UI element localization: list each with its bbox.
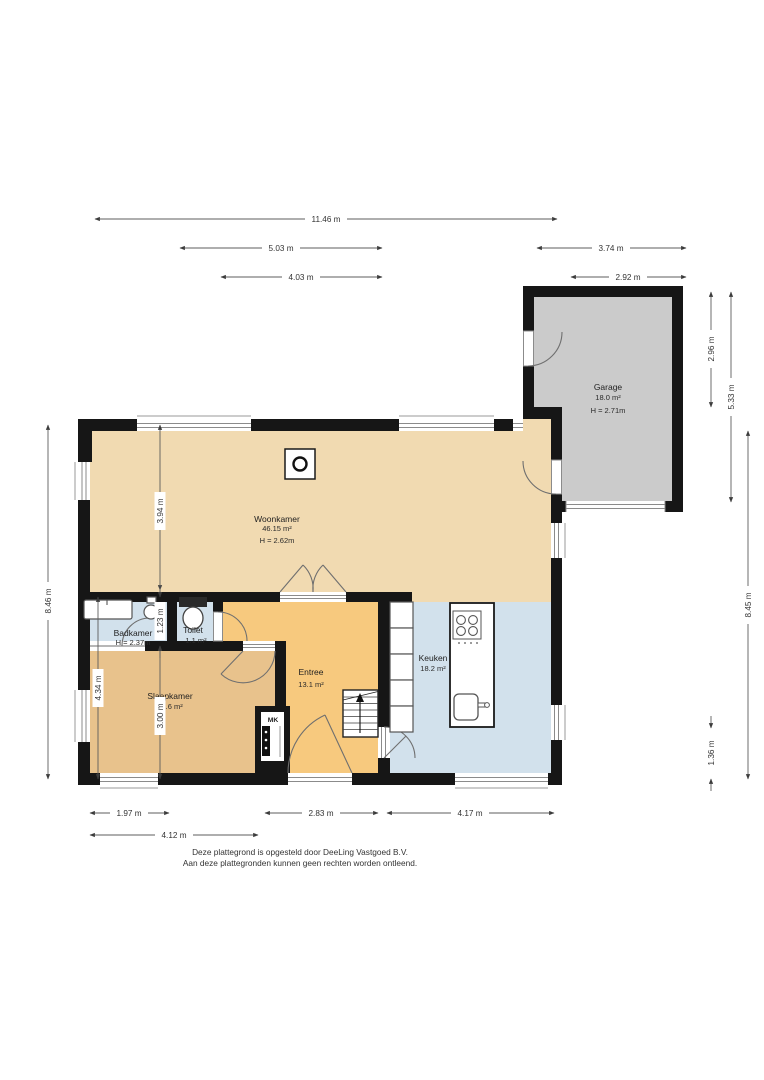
room-woonkamer-notch <box>523 419 551 431</box>
dim-right-garage: 5.33 m <box>726 292 737 502</box>
window-bottom-slaapkamer <box>100 773 158 788</box>
window-right-woonkamer <box>551 523 565 558</box>
dim-top-right-inner: 2.92 m <box>571 272 686 283</box>
dim-bottom-entree: 2.83 m <box>265 808 378 819</box>
window-right-keuken <box>551 705 565 740</box>
wall-entree-keuken-lower <box>378 758 390 773</box>
svg-text:8.45 m: 8.45 m <box>744 592 753 617</box>
svg-text:3.00 m: 3.00 m <box>156 703 165 728</box>
window-top-1 <box>137 416 251 431</box>
dim-bottom-slaapkamer: 1.97 m <box>90 808 169 819</box>
label-woonkamer: Woonkamer <box>254 514 300 524</box>
kitchen-cabinets <box>390 602 413 732</box>
wall-woonkamer-south <box>90 592 412 602</box>
label-toilet: Toilet <box>183 625 203 635</box>
dim-right-lower: 1.36 m <box>706 716 717 791</box>
floorplan-canvas: MK <box>0 0 764 1080</box>
svg-text:3.94 m: 3.94 m <box>156 498 165 523</box>
svg-text:8.46 m: 8.46 m <box>44 588 53 613</box>
dimensions-bottom: 1.97 m 2.83 m 4.17 m 4.12 m <box>90 808 554 841</box>
dim-right-total: 8.45 m <box>743 431 754 779</box>
svg-text:4.17 m: 4.17 m <box>457 809 482 818</box>
dim-top-left-mid: 5.03 m <box>180 243 382 254</box>
svg-text:1.36 m: 1.36 m <box>707 740 716 765</box>
label-keuken: Keuken <box>419 653 448 663</box>
garage-overhead-door <box>566 501 665 512</box>
wall-garage-connector <box>523 407 562 419</box>
meterkast-closet: MK <box>255 706 290 773</box>
window-bottom-keuken <box>455 773 548 788</box>
dim-top-right-mid: 3.74 m <box>537 243 686 254</box>
window-left-slaapkamer <box>75 690 90 742</box>
bathtub-icon <box>84 600 132 619</box>
kitchen-island <box>450 603 494 727</box>
label-toilet-area: 1.1 m² <box>185 636 207 645</box>
window-top-corner <box>513 419 523 431</box>
svg-text:4.12 m: 4.12 m <box>161 831 186 840</box>
svg-text:1.97 m: 1.97 m <box>116 809 141 818</box>
label-woonkamer-area: 46.15 m² <box>262 524 292 533</box>
svg-text:4.34 m: 4.34 m <box>94 675 103 700</box>
label-entree-area: 13.1 m² <box>298 680 324 689</box>
wall-entree-left <box>275 641 286 706</box>
dim-right-garage-upper: 2.96 m <box>706 292 717 407</box>
label-entree: Entree <box>298 667 323 677</box>
wall-garage-top <box>523 286 683 297</box>
floorplan-page: MK <box>0 0 764 1080</box>
window-top-2 <box>399 416 494 431</box>
svg-text:1.23 m: 1.23 m <box>156 608 165 633</box>
wall-toilet-right <box>213 592 223 612</box>
dim-top-left-inner: 4.03 m <box>221 272 382 283</box>
label-slaapkamer: Slaapkamer <box>147 691 193 701</box>
label-woonkamer-height: H = 2.62m <box>260 536 295 545</box>
fireplace-icon <box>285 449 315 479</box>
label-garage-height: H = 2.71m <box>591 406 626 415</box>
dim-bottom-left-total: 4.12 m <box>90 830 258 841</box>
stairs <box>343 690 378 737</box>
footer-line-2: Aan deze plattegronden kunnen geen recht… <box>183 858 417 868</box>
dim-bottom-keuken: 4.17 m <box>387 808 554 819</box>
meterkast-label: MK <box>268 717 279 724</box>
footer-disclaimer: Deze plattegrond is opgesteld door DeeLi… <box>183 847 417 868</box>
label-badkamer: Badkamer <box>114 628 153 638</box>
dim-top-total: 11.46 m <box>95 214 557 225</box>
label-garage: Garage <box>594 382 623 392</box>
wall-left-pier <box>78 419 92 462</box>
wall-entree-keuken-upper <box>378 592 390 727</box>
wall-garage-right <box>672 286 683 512</box>
room-slaapkamer <box>90 651 275 773</box>
svg-text:2.92 m: 2.92 m <box>615 273 640 282</box>
svg-text:3.74 m: 3.74 m <box>598 244 623 253</box>
svg-text:5.03 m: 5.03 m <box>268 244 293 253</box>
svg-text:2.96 m: 2.96 m <box>707 336 716 361</box>
badkamer-fixtures <box>84 597 158 619</box>
svg-text:5.33 m: 5.33 m <box>727 384 736 409</box>
label-garage-area: 18.0 m² <box>595 393 621 402</box>
wall-badkamer-toilet <box>167 602 177 641</box>
dimensions-top: 11.46 m 5.03 m 3.74 m 4.03 m 2.92 m <box>95 214 686 283</box>
hob-icon <box>453 611 481 644</box>
dim-left-total: 8.46 m <box>43 425 54 779</box>
svg-text:2.83 m: 2.83 m <box>308 809 333 818</box>
svg-text:4.03 m: 4.03 m <box>288 273 313 282</box>
window-left-woonkamer <box>75 462 90 500</box>
dimensions-right: 2.96 m 5.33 m 8.45 m 1.36 m <box>706 292 754 791</box>
svg-text:11.46 m: 11.46 m <box>312 215 341 224</box>
footer-line-1: Deze plattegrond is opgesteld door DeeLi… <box>192 847 408 857</box>
label-badkamer-height: H = 2.37m <box>116 638 151 647</box>
label-keuken-area: 18.2 m² <box>420 664 446 673</box>
